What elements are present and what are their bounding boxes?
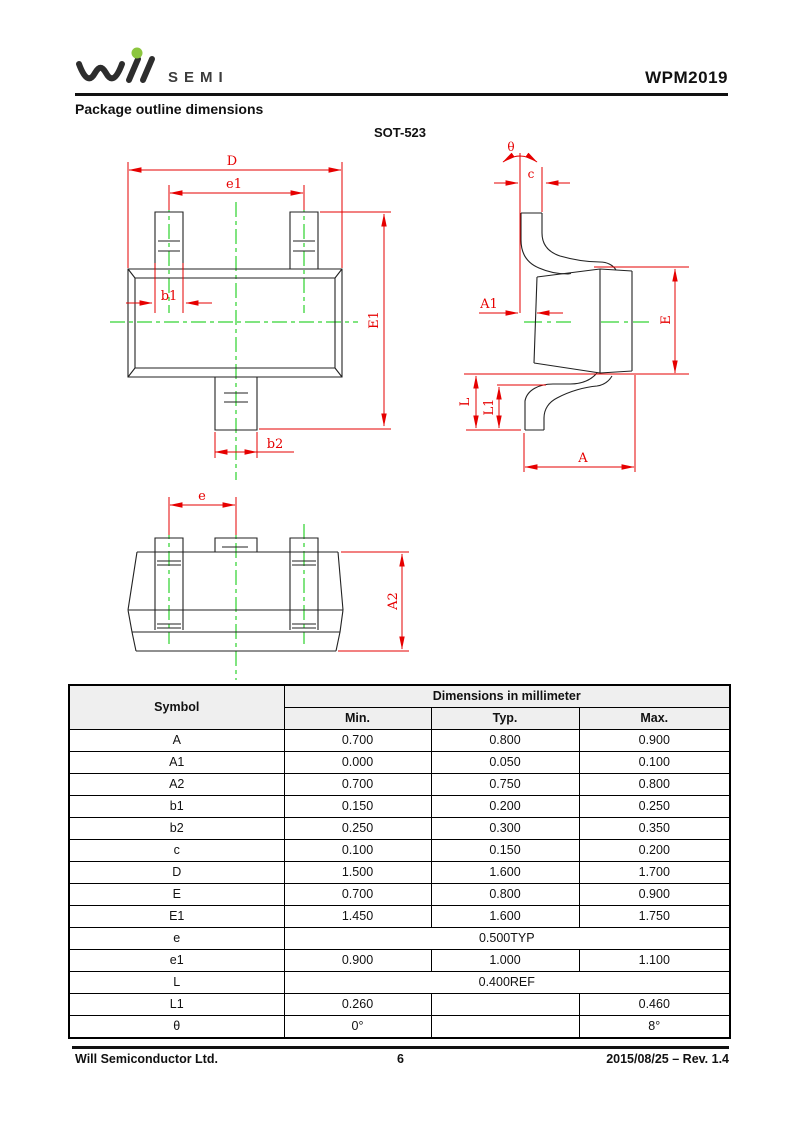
typ-cell: 0.800 [431, 730, 579, 752]
part-number: WPM2019 [645, 68, 728, 88]
span-value-cell: 0.400REF [284, 972, 730, 994]
typ-cell: 1.600 [431, 906, 579, 928]
dim-label-b1: b1 [161, 289, 178, 304]
symbol-cell: A1 [69, 752, 284, 774]
max-cell: 1.100 [579, 950, 730, 972]
typ-cell: 0.800 [431, 884, 579, 906]
footer-page-number: 6 [397, 1052, 404, 1066]
max-cell: 8° [579, 1016, 730, 1039]
max-cell: 0.460 [579, 994, 730, 1016]
typ-cell: 0.300 [431, 818, 579, 840]
logo-slash-2 [143, 59, 152, 80]
max-cell: 0.900 [579, 884, 730, 906]
dim-label-theta: θ [507, 140, 514, 154]
table-row: L10.2600.460 [69, 994, 730, 1016]
symbol-cell: b1 [69, 796, 284, 818]
typ-cell [431, 1016, 579, 1039]
table-row: E0.7000.8000.900 [69, 884, 730, 906]
table-row: b20.2500.3000.350 [69, 818, 730, 840]
symbol-cell: A2 [69, 774, 284, 796]
symbol-cell: E1 [69, 906, 284, 928]
dim-label-A1: A1 [479, 297, 498, 312]
logo-semi-text: SEMI [168, 69, 229, 86]
min-cell: 0.000 [284, 752, 431, 774]
table-row: b10.1500.2000.250 [69, 796, 730, 818]
min-cell: 0.700 [284, 730, 431, 752]
max-cell: 0.250 [579, 796, 730, 818]
table-row: c0.1000.1500.200 [69, 840, 730, 862]
logo-slash-1 [129, 59, 138, 80]
typ-cell: 0.750 [431, 774, 579, 796]
table-row: e0.500TYP [69, 928, 730, 950]
table-row: θ0°8° [69, 1016, 730, 1039]
min-cell: 0.100 [284, 840, 431, 862]
dim-label-E1: E1 [367, 311, 382, 329]
table-row: A0.7000.8000.900 [69, 730, 730, 752]
symbol-cell: b2 [69, 818, 284, 840]
symbol-cell: c [69, 840, 284, 862]
front-view-centerlines [169, 516, 304, 680]
symbol-cell: θ [69, 1016, 284, 1039]
max-cell: 0.800 [579, 774, 730, 796]
dim-label-e1: e1 [226, 177, 242, 192]
max-cell: 0.100 [579, 752, 730, 774]
logo-wave [79, 64, 122, 78]
typ-cell: 0.200 [431, 796, 579, 818]
typ-cell: 1.600 [431, 862, 579, 884]
page-title: Package outline dimensions [75, 101, 263, 117]
min-cell: 0.700 [284, 884, 431, 906]
side-view: θ c A1 E L L1 A [458, 140, 689, 472]
footer-company: Will Semiconductor Ltd. [75, 1052, 218, 1066]
max-cell: 0.900 [579, 730, 730, 752]
footer-rule [72, 1046, 729, 1049]
typ-column-header: Typ. [431, 708, 579, 730]
datasheet-page: SEMI WPM2019 Package outline dimensions … [0, 0, 800, 1132]
dimensions-table: Symbol Dimensions in millimeter Min. Typ… [68, 684, 731, 1039]
typ-cell: 0.050 [431, 752, 579, 774]
min-cell: 1.450 [284, 906, 431, 928]
header-rule [75, 93, 728, 96]
span-value-cell: 0.500TYP [284, 928, 730, 950]
top-view-centerlines [110, 197, 358, 480]
logo-green-dot-icon [132, 48, 143, 59]
dim-label-b2: b2 [267, 437, 284, 452]
top-view: D e1 E1 b1 b2 [110, 154, 391, 480]
dim-label-A: A [577, 451, 588, 466]
min-cell: 0° [284, 1016, 431, 1039]
table-row: D1.5001.6001.700 [69, 862, 730, 884]
side-view-dimensions [464, 153, 689, 472]
typ-cell: 1.000 [431, 950, 579, 972]
table-row: E11.4501.6001.750 [69, 906, 730, 928]
symbol-cell: e1 [69, 950, 284, 972]
min-column-header: Min. [284, 708, 431, 730]
min-cell: 0.250 [284, 818, 431, 840]
max-cell: 0.350 [579, 818, 730, 840]
symbol-cell: e [69, 928, 284, 950]
typ-cell: 0.150 [431, 840, 579, 862]
symbol-cell: A [69, 730, 284, 752]
dim-label-E: E [659, 315, 674, 325]
footer-revision: 2015/08/25 – Rev. 1.4 [606, 1052, 729, 1066]
typ-cell [431, 994, 579, 1016]
dim-label-c: c [528, 167, 535, 181]
footer: Will Semiconductor Ltd. 6 2015/08/25 – R… [72, 1052, 729, 1072]
max-column-header: Max. [579, 708, 730, 730]
max-cell: 1.700 [579, 862, 730, 884]
dim-label-L: L [458, 397, 473, 406]
symbol-cell: L [69, 972, 284, 994]
min-cell: 1.500 [284, 862, 431, 884]
dimensions-table-body: A0.7000.8000.900A10.0000.0500.100A20.700… [69, 730, 730, 1039]
min-cell: 0.700 [284, 774, 431, 796]
max-cell: 0.200 [579, 840, 730, 862]
symbol-cell: E [69, 884, 284, 906]
max-cell: 1.750 [579, 906, 730, 928]
dim-label-L1: L1 [482, 399, 497, 416]
min-cell: 0.150 [284, 796, 431, 818]
min-cell: 0.900 [284, 950, 431, 972]
symbol-cell: D [69, 862, 284, 884]
front-view: e A2 [128, 489, 409, 680]
symbol-cell: L1 [69, 994, 284, 1016]
front-view-dimensions [169, 497, 409, 651]
package-name-title: SOT-523 [300, 125, 500, 140]
dim-label-A2: A2 [386, 592, 401, 611]
top-view-dimensions [126, 162, 391, 458]
table-row: L0.400REF [69, 972, 730, 994]
dim-label-D: D [227, 154, 237, 169]
will-semi-logo: SEMI [73, 46, 248, 94]
table-row: A20.7000.7500.800 [69, 774, 730, 796]
dimensions-group-header: Dimensions in millimeter [284, 685, 730, 708]
table-row: A10.0000.0500.100 [69, 752, 730, 774]
top-view-outline [128, 212, 342, 430]
table-header-row-1: Symbol Dimensions in millimeter [69, 685, 730, 708]
symbol-column-header: Symbol [69, 685, 284, 730]
table-row: e10.9001.0001.100 [69, 950, 730, 972]
package-outline-drawing: D e1 E1 b1 b2 [60, 140, 740, 690]
dim-label-e: e [198, 489, 206, 504]
min-cell: 0.260 [284, 994, 431, 1016]
